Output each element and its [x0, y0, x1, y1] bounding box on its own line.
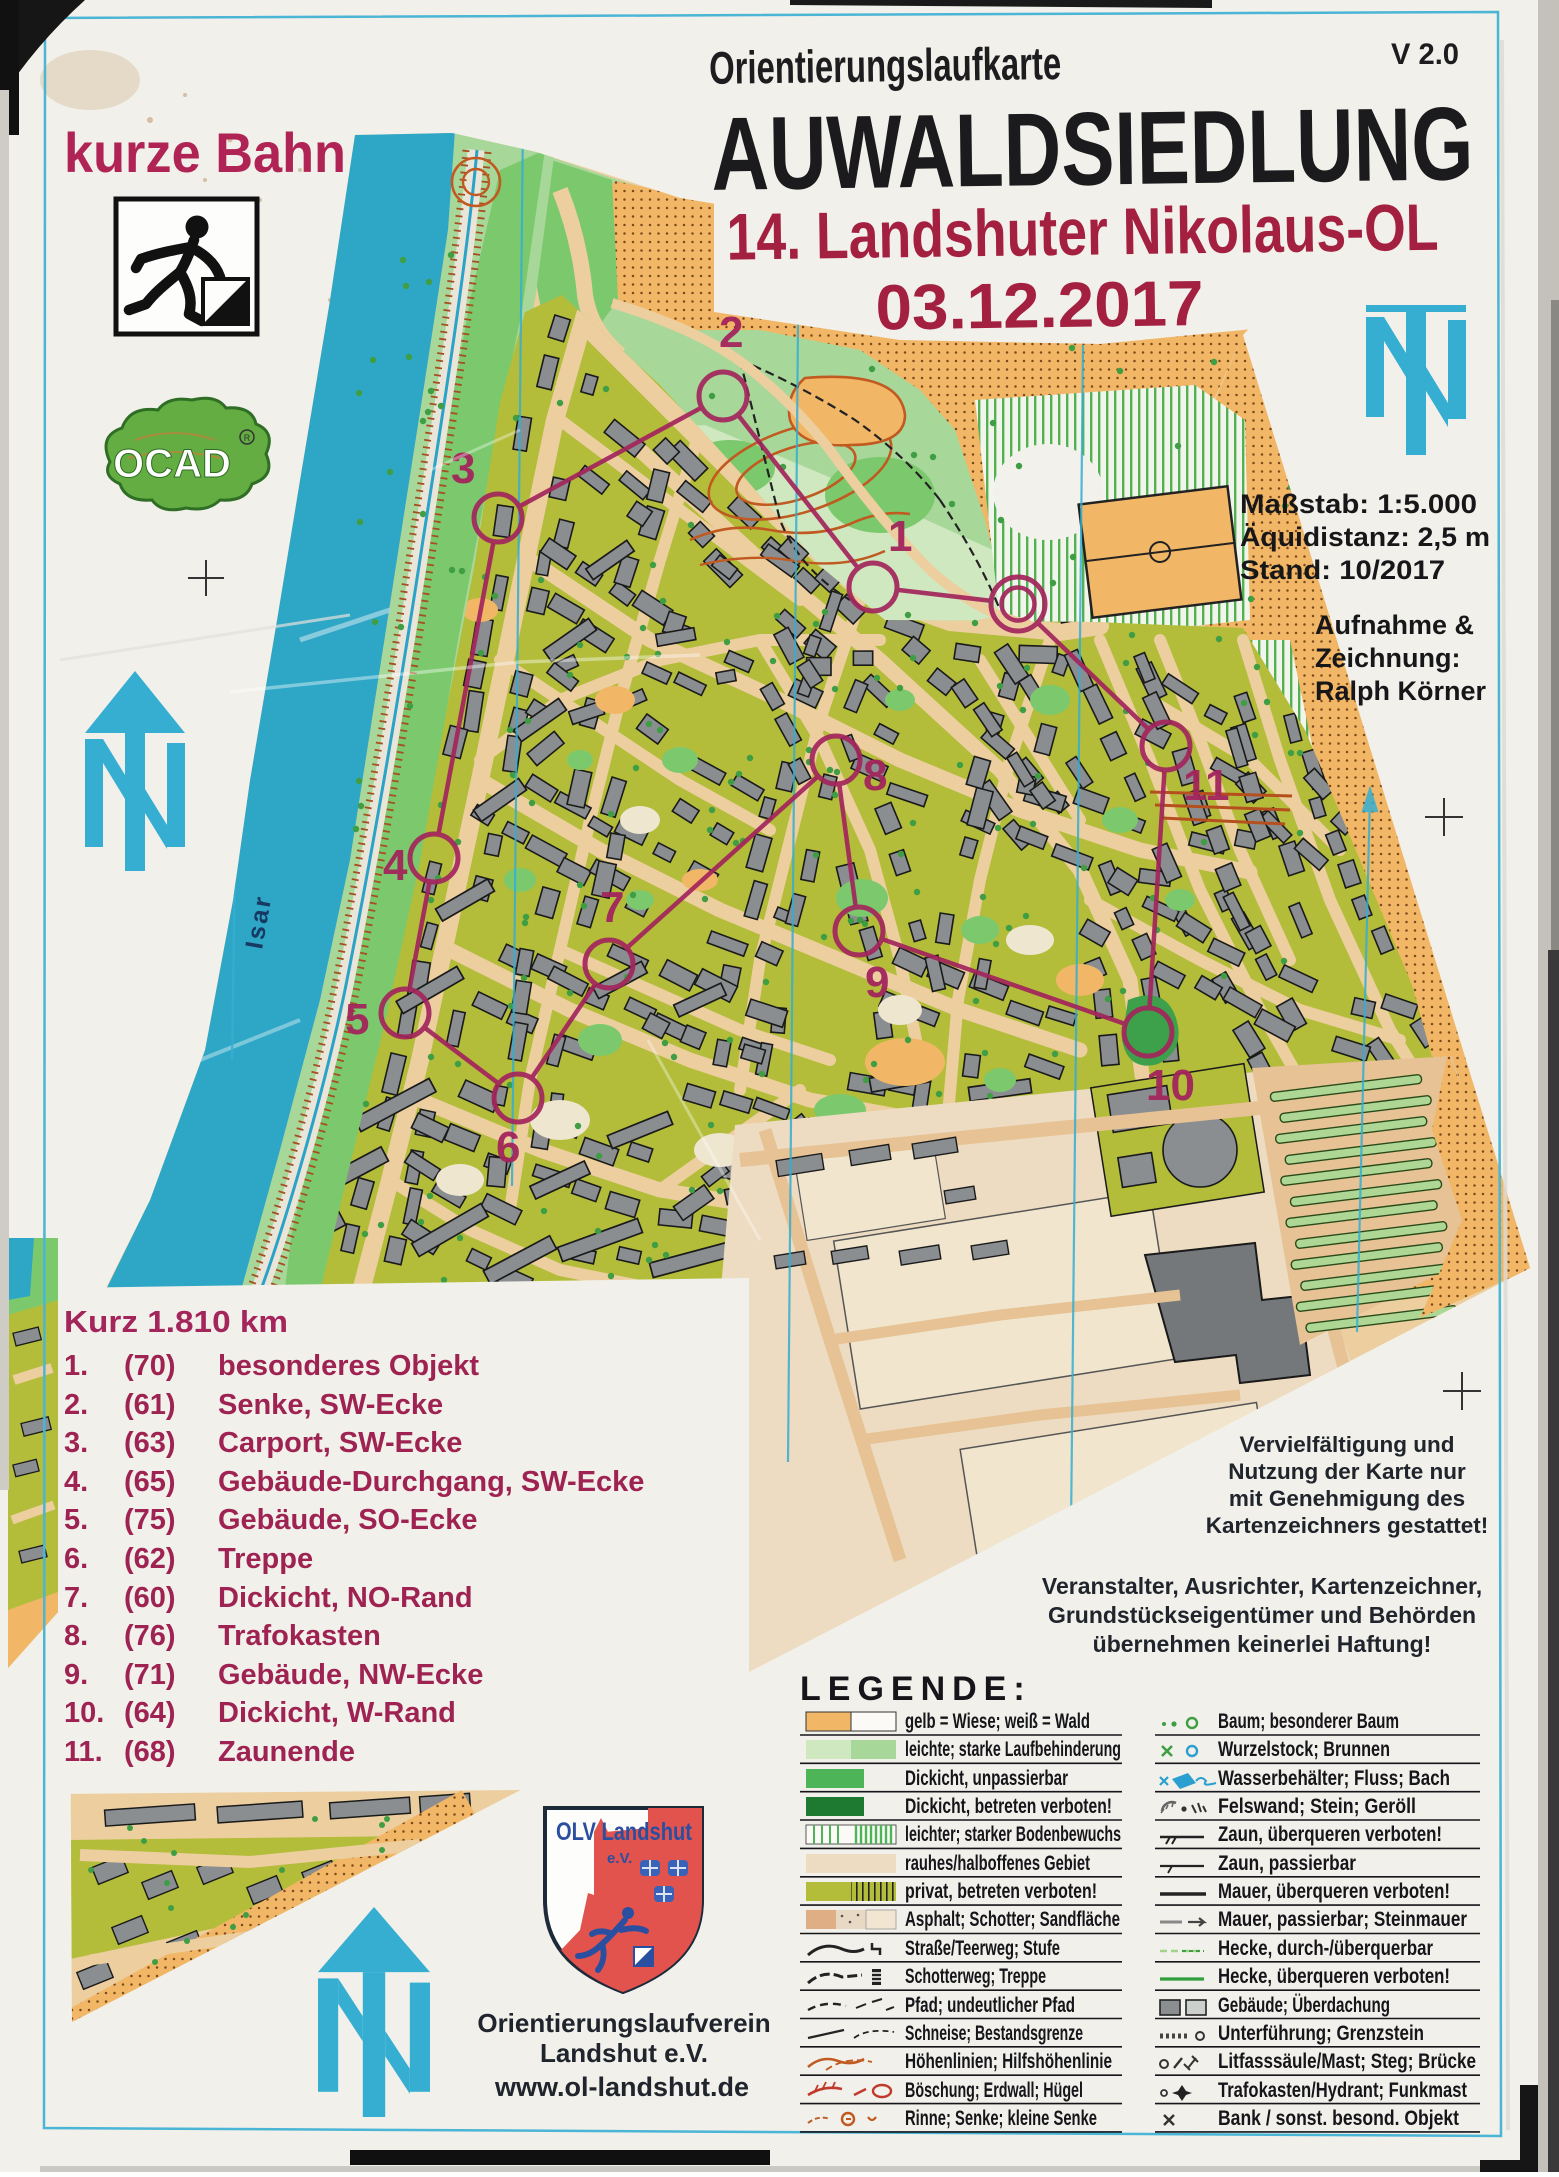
svg-text:(61): (61): [124, 1389, 176, 1421]
svg-text:5: 5: [345, 995, 369, 1044]
svg-text:Dickicht, NO-Rand: Dickicht, NO-Rand: [218, 1582, 473, 1614]
svg-text:4.: 4.: [64, 1466, 88, 1498]
svg-text:7: 7: [600, 883, 624, 932]
svg-text:(63): (63): [124, 1427, 176, 1459]
svg-text:(60): (60): [124, 1582, 176, 1614]
svg-text:Gebäude; Überdachung: Gebäude; Überdachung: [1218, 1992, 1390, 2017]
svg-text:Nutzung der Karte nur: Nutzung der Karte nur: [1228, 1459, 1466, 1484]
svg-text:1.: 1.: [64, 1350, 88, 1382]
svg-text:Wasserbehälter; Fluss; Bach: Wasserbehälter; Fluss; Bach: [1218, 1766, 1450, 1790]
svg-text:Stand: 10/2017: Stand: 10/2017: [1240, 555, 1445, 585]
svg-text:Unterführung; Grenzstein: Unterführung; Grenzstein: [1218, 2021, 1424, 2045]
svg-text:03.12.2017: 03.12.2017: [875, 267, 1204, 344]
svg-text:Zaunende: Zaunende: [218, 1736, 355, 1768]
svg-text:Grundstückseigentümer und Behö: Grundstückseigentümer und Behörden: [1048, 1602, 1476, 1628]
svg-text:Litfasssäule/Mast; Steg; Brück: Litfasssäule/Mast; Steg; Brücke: [1218, 2049, 1476, 2073]
svg-text:1: 1: [888, 512, 912, 561]
svg-text:Senke, SW-Ecke: Senke, SW-Ecke: [218, 1389, 443, 1421]
svg-text:7.: 7.: [64, 1582, 88, 1614]
svg-text:V 2.0: V 2.0: [1391, 38, 1459, 71]
svg-text:14. Landshuter Nikolaus-OL: 14. Landshuter Nikolaus-OL: [726, 190, 1439, 274]
svg-text:besonderes Objekt: besonderes Objekt: [218, 1350, 479, 1382]
svg-text:Carport, SW-Ecke: Carport, SW-Ecke: [218, 1427, 462, 1459]
svg-text:2.: 2.: [64, 1389, 88, 1421]
svg-text:9.: 9.: [64, 1659, 88, 1691]
svg-text:(68): (68): [124, 1736, 176, 1768]
svg-text:Treppe: Treppe: [218, 1543, 313, 1575]
svg-text:10: 10: [1146, 1061, 1195, 1110]
svg-text:Felswand; Stein; Geröll: Felswand; Stein; Geröll: [1218, 1794, 1416, 1818]
svg-text:übernehmen keinerlei Haftung!: übernehmen keinerlei Haftung!: [1093, 1631, 1432, 1657]
svg-text:OLV Landshut: OLV Landshut: [556, 1818, 693, 1846]
svg-text:(76): (76): [124, 1620, 176, 1652]
svg-text:Zaun, überqueren verboten!: Zaun, überqueren verboten!: [1218, 1822, 1442, 1846]
svg-text:2: 2: [719, 308, 743, 357]
svg-text:Zeichnung:: Zeichnung:: [1315, 643, 1460, 673]
svg-text:gelb = Wiese; weiß = Wald: gelb = Wiese; weiß = Wald: [905, 1709, 1090, 1733]
svg-text:Trafokasten: Trafokasten: [218, 1620, 381, 1652]
svg-text:(75): (75): [124, 1504, 176, 1536]
svg-text:LEGENDE:: LEGENDE:: [800, 1670, 1032, 1708]
svg-text:(71): (71): [124, 1659, 176, 1691]
svg-text:(62): (62): [124, 1543, 176, 1575]
svg-text:Orientierungslaufverein: Orientierungslaufverein: [477, 2008, 770, 2038]
svg-text:8.: 8.: [64, 1620, 88, 1652]
svg-text:4: 4: [383, 841, 408, 890]
svg-text:privat, betreten verboten!: privat, betreten verboten!: [905, 1879, 1097, 1903]
svg-text:Dickicht, betreten verboten!: Dickicht, betreten verboten!: [905, 1794, 1112, 1818]
svg-text:Maßstab: 1:5.000: Maßstab: 1:5.000: [1240, 489, 1477, 519]
svg-text:(64): (64): [124, 1697, 176, 1729]
svg-text:Pfad; undeutlicher Pfad: Pfad; undeutlicher Pfad: [905, 1993, 1075, 2017]
svg-text:Schotterweg; Treppe: Schotterweg; Treppe: [905, 1964, 1046, 1988]
svg-text:11: 11: [1183, 761, 1230, 810]
svg-text:Wurzelstock; Brunnen: Wurzelstock; Brunnen: [1218, 1737, 1390, 1761]
svg-text:Trafokasten/Hydrant; Funkmast: Trafokasten/Hydrant; Funkmast: [1218, 2078, 1467, 2102]
svg-text:R: R: [244, 433, 251, 443]
svg-text:11.: 11.: [64, 1736, 103, 1768]
svg-text:Veranstalter, Ausrichter, Kart: Veranstalter, Ausrichter, Kartenzeichner…: [1042, 1573, 1482, 1599]
svg-text:6: 6: [496, 1123, 520, 1172]
svg-text:Böschung; Erdwall; Hügel: Böschung; Erdwall; Hügel: [905, 2078, 1083, 2102]
svg-text:Mauer, überqueren verboten!: Mauer, überqueren verboten!: [1218, 1879, 1450, 1903]
svg-text:Mauer, passierbar; Steinmauer: Mauer, passierbar; Steinmauer: [1218, 1907, 1467, 1931]
svg-text:mit Genehmigung des: mit Genehmigung des: [1229, 1486, 1465, 1511]
svg-text:Landshut e.V.: Landshut e.V.: [540, 2038, 708, 2068]
svg-text:5.: 5.: [64, 1504, 88, 1536]
svg-text:Baum; besonderer Baum: Baum; besonderer Baum: [1218, 1709, 1399, 1733]
svg-text:Vervielfältigung und: Vervielfältigung und: [1239, 1432, 1454, 1457]
svg-text:Hecke, durch-/überquerbar: Hecke, durch-/überquerbar: [1218, 1936, 1433, 1960]
svg-text:OCAD: OCAD: [113, 442, 231, 486]
svg-text:6.: 6.: [64, 1543, 88, 1575]
svg-text:Asphalt; Schotter; Sandfläche: Asphalt; Schotter; Sandfläche: [905, 1907, 1120, 1931]
svg-text:Kartenzeichners gestattet!: Kartenzeichners gestattet!: [1206, 1513, 1489, 1538]
svg-text:8: 8: [863, 751, 887, 800]
svg-text:Ralph Körner: Ralph Körner: [1315, 676, 1487, 706]
svg-text:Kurz 1.810 km: Kurz 1.810 km: [64, 1304, 288, 1339]
svg-text:Gebäude, SO-Ecke: Gebäude, SO-Ecke: [218, 1504, 478, 1536]
svg-text:www.ol-landshut.de: www.ol-landshut.de: [494, 2072, 749, 2102]
svg-text:kurze Bahn: kurze Bahn: [64, 121, 346, 184]
svg-text:Gebäude-Durchgang, SW-Ecke: Gebäude-Durchgang, SW-Ecke: [218, 1466, 644, 1498]
svg-text:10.: 10.: [64, 1697, 104, 1729]
svg-text:Orientierungslaufkarte: Orientierungslaufkarte: [709, 37, 1062, 94]
svg-text:3.: 3.: [64, 1427, 88, 1459]
svg-text:Schneise; Bestandsgrenze: Schneise; Bestandsgrenze: [905, 2021, 1083, 2045]
svg-text:Dickicht, unpassierbar: Dickicht, unpassierbar: [905, 1766, 1068, 1790]
svg-text:(65): (65): [124, 1466, 176, 1498]
svg-text:leichte; starke Laufbehinderun: leichte; starke Laufbehinderung: [905, 1737, 1121, 1761]
svg-text:(70): (70): [124, 1350, 176, 1382]
svg-text:Straße/Teerweg; Stufe: Straße/Teerweg; Stufe: [905, 1936, 1060, 1960]
svg-text:Hecke, überqueren verboten!: Hecke, überqueren verboten!: [1218, 1964, 1450, 1988]
svg-text:Bank / sonst. besond. Objekt: Bank / sonst. besond. Objekt: [1218, 2106, 1459, 2130]
svg-text:Höhenlinien; Hilfshöhenlinie: Höhenlinien; Hilfshöhenlinie: [905, 2049, 1112, 2073]
svg-text:leichter; starker Bodenbewuchs: leichter; starker Bodenbewuchs: [905, 1822, 1121, 1846]
svg-text:Rinne; Senke; kleine Senke: Rinne; Senke; kleine Senke: [905, 2106, 1097, 2130]
svg-text:Äquidistanz: 2,5 m: Äquidistanz: 2,5 m: [1240, 522, 1490, 552]
svg-text:Zaun, passierbar: Zaun, passierbar: [1218, 1851, 1356, 1875]
svg-text:9: 9: [865, 958, 889, 1007]
svg-text:rauhes/halboffenes Gebiet: rauhes/halboffenes Gebiet: [905, 1851, 1090, 1875]
svg-text:Dickicht, W-Rand: Dickicht, W-Rand: [218, 1697, 456, 1729]
svg-text:Aufnahme &: Aufnahme &: [1315, 610, 1474, 640]
svg-text:e.V.: e.V.: [607, 1850, 632, 1867]
svg-text:Gebäude, NW-Ecke: Gebäude, NW-Ecke: [218, 1659, 483, 1691]
